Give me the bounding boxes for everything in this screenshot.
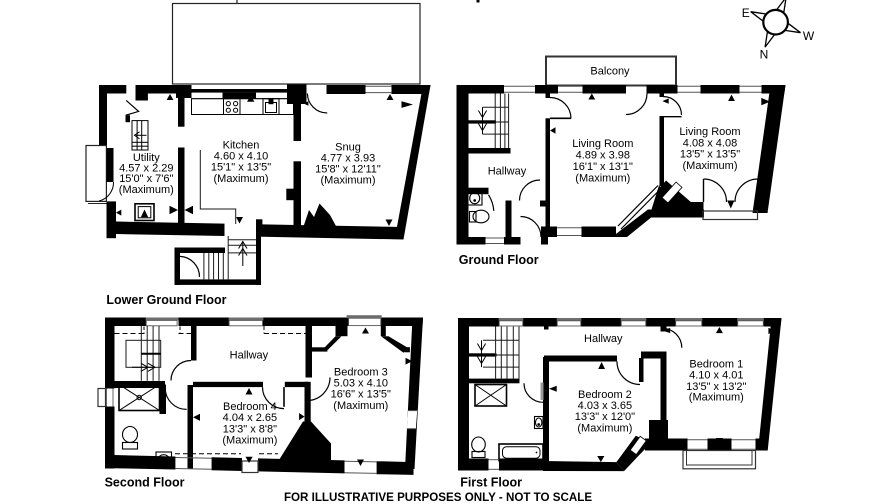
svg-text:13'3" x 12'0": 13'3" x 12'0" xyxy=(575,411,635,423)
svg-text:Ground Floor: Ground Floor xyxy=(459,253,539,267)
svg-text:(Maximum): (Maximum) xyxy=(321,175,376,187)
svg-text:4.03 x 3.65: 4.03 x 3.65 xyxy=(578,400,632,412)
svg-text:(Maximum): (Maximum) xyxy=(119,184,174,196)
svg-text:N: N xyxy=(760,48,769,62)
svg-text:4.10 x 4.01: 4.10 x 4.01 xyxy=(689,370,743,382)
svg-text:Bedroom 4: Bedroom 4 xyxy=(223,401,277,413)
svg-text:W: W xyxy=(803,29,815,43)
svg-text:Bedroom 3: Bedroom 3 xyxy=(334,366,388,378)
svg-text:First Floor: First Floor xyxy=(460,476,522,490)
svg-text:Hallway: Hallway xyxy=(584,333,623,345)
svg-text:Living Room: Living Room xyxy=(679,126,740,138)
svg-text:Second Floor: Second Floor xyxy=(105,476,185,490)
svg-text:Living Room: Living Room xyxy=(572,138,633,150)
svg-text:(Maximum): (Maximum) xyxy=(333,400,388,412)
svg-text:Balcony: Balcony xyxy=(590,66,630,78)
svg-text:(Maximum): (Maximum) xyxy=(214,173,269,185)
svg-text:(Maximum): (Maximum) xyxy=(689,392,744,404)
svg-text:E: E xyxy=(742,6,750,20)
svg-text:FOR ILLUSTRATIVE PURPOSES ONLY: FOR ILLUSTRATIVE PURPOSES ONLY - NOT TO … xyxy=(284,491,592,504)
svg-text:4.04 x 2.65: 4.04 x 2.65 xyxy=(223,412,277,424)
svg-text:5.03 x 4.10: 5.03 x 4.10 xyxy=(334,378,388,390)
svg-text:(Maximum): (Maximum) xyxy=(577,422,632,434)
svg-text:(Maximum): (Maximum) xyxy=(683,160,738,172)
svg-text:Hallway: Hallway xyxy=(230,350,269,362)
svg-text:(Maximum): (Maximum) xyxy=(575,172,630,184)
svg-text:13'5" x 13'5": 13'5" x 13'5" xyxy=(680,149,740,161)
svg-text:Lower Ground Floor: Lower Ground Floor xyxy=(106,293,226,307)
svg-text:4.08 x 4.08: 4.08 x 4.08 xyxy=(683,137,737,149)
svg-text:16'1" x 13'1": 16'1" x 13'1" xyxy=(573,161,633,173)
svg-text:Hallway: Hallway xyxy=(488,166,527,178)
svg-text:(Maximum): (Maximum) xyxy=(222,435,277,447)
svg-text:13'3" x 8'8": 13'3" x 8'8" xyxy=(223,423,277,435)
svg-text:4.89 x 3.98: 4.89 x 3.98 xyxy=(576,149,630,161)
svg-text:16'6" x 13'5": 16'6" x 13'5" xyxy=(331,389,391,401)
